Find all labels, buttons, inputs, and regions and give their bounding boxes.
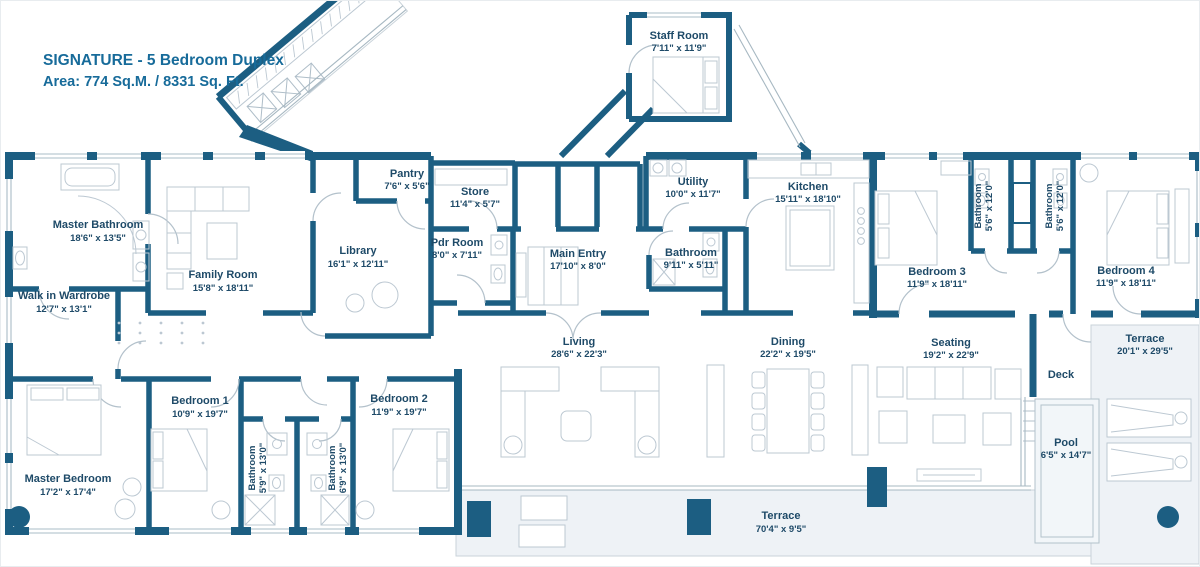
- room-label-pdr-room: Pdr Room 8'0" x 7'11": [431, 237, 484, 261]
- room-dims: 6'5" x 14'7": [1041, 450, 1092, 461]
- furniture-store: [435, 169, 507, 185]
- room-dims: 9'11" x 5'11": [664, 260, 719, 271]
- room-label-bedroom-2: Bedroom 2 11'9" x 19'7": [370, 393, 427, 418]
- furniture-bedroom-2: [356, 429, 449, 519]
- room-label-living: Living 28'6" x 22'3": [551, 336, 607, 360]
- room-dims: 19'2" x 22'9": [923, 350, 979, 361]
- room-dims: 5'6" x 12'0": [984, 181, 995, 232]
- pool-outline: [1035, 399, 1099, 543]
- room-label-bathroom-4: Bathroom 5'6" x 12'0": [1044, 181, 1066, 232]
- floor-plan: Master Bathroom 18'6" x 13'5" Family Roo…: [1, 1, 1200, 567]
- terrace-column: [687, 499, 711, 535]
- room-dims: 11'9" x 18'11": [1096, 278, 1156, 289]
- room-name: Staff Room: [650, 30, 709, 42]
- room-name: Bathroom: [665, 247, 717, 259]
- room-label-library: Library 16'1" x 12'11": [328, 245, 389, 270]
- room-name: Bedroom 1: [171, 395, 228, 407]
- terrace-column: [467, 501, 491, 537]
- room-label-staff-room: Staff Room 7'11" x 11'9": [650, 30, 709, 54]
- room-dims: 28'6" x 22'3": [551, 349, 607, 360]
- room-name: Terrace: [762, 510, 801, 522]
- room-name: Dining: [771, 336, 805, 348]
- room-dims: 70'4" x 9'5": [756, 524, 807, 535]
- room-name: Store: [461, 186, 489, 198]
- room-name: Pdr Room: [431, 237, 484, 249]
- room-dims: 11'9" x 19'7": [371, 407, 426, 418]
- floor-plan-page: Master Bathroom 18'6" x 13'5" Family Roo…: [0, 0, 1200, 567]
- room-dims: 17'10" x 8'0": [550, 261, 606, 272]
- furniture-bedroom-3: [875, 161, 971, 265]
- room-dims: 8'0" x 7'11": [432, 250, 482, 261]
- room-dims: 11'4" x 5'7": [450, 199, 500, 210]
- wall-stub: [867, 467, 887, 507]
- room-name: Bathroom: [327, 446, 338, 491]
- room-dims: 7'11" x 11'9": [652, 43, 707, 54]
- room-dims: 17'2" x 17'4": [40, 487, 96, 498]
- room-name: Bathroom: [247, 446, 258, 491]
- room-label-walk-in-wardrobe: Walk in Wardrobe 12'7" x 13'1": [18, 290, 110, 315]
- room-name: Pool: [1054, 437, 1078, 449]
- room-name: Master Bedroom: [25, 473, 112, 485]
- room-label-store: Store 11'4" x 5'7": [450, 186, 500, 210]
- room-label-bedroom-4: Bedroom 4 11'9" x 18'11": [1096, 265, 1156, 289]
- entrance-gallery: [218, 1, 407, 162]
- room-name: Bedroom 2: [370, 393, 427, 405]
- room-dims: 6'9" x 13'0": [338, 443, 349, 494]
- room-dims: 5'9" x 13'0": [258, 443, 269, 494]
- room-name: Utility: [678, 176, 709, 188]
- room-name: Pantry: [390, 168, 425, 180]
- room-label-master-bedroom: Master Bedroom 17'2" x 17'4": [25, 473, 112, 498]
- furniture-master-bedroom: [27, 385, 141, 519]
- room-name: Library: [339, 245, 377, 257]
- room-label-deck: Deck: [1048, 369, 1075, 381]
- furniture-entry-bathroom: [653, 233, 719, 285]
- room-label-pantry: Pantry 7'6" x 5'6": [384, 168, 429, 192]
- room-dims: 16'1" x 12'11": [328, 259, 389, 270]
- room-dims: 10'9" x 19'7": [172, 409, 228, 420]
- room-name: Living: [563, 336, 595, 348]
- room-name: Bathroom: [1044, 184, 1055, 229]
- room-name: Main Entry: [550, 248, 607, 260]
- room-dims: 22'2" x 19'5": [760, 349, 816, 360]
- room-name: Kitchen: [788, 181, 829, 193]
- room-label-kitchen: Kitchen 15'11" x 18'10": [775, 181, 841, 205]
- room-label-family-room: Family Room 15'8" x 18'11": [188, 269, 257, 294]
- round-column: [1157, 506, 1179, 528]
- furniture-dining: [752, 369, 824, 453]
- furniture-seating: [852, 365, 1021, 481]
- furniture-living: [501, 365, 724, 457]
- room-name: Walk in Wardrobe: [18, 290, 110, 302]
- room-name: Family Room: [188, 269, 257, 281]
- room-label-seating: Seating 19'2" x 22'9": [923, 337, 979, 361]
- room-dims: 10'0" x 11'7": [665, 189, 720, 200]
- plan-title-line1: SIGNATURE - 5 Bedroom Duplex: [43, 52, 284, 69]
- room-label-dining: Dining 22'2" x 19'5": [760, 336, 816, 360]
- room-dims: 15'11" x 18'10": [775, 194, 841, 205]
- staff-glass-rail: [734, 25, 805, 147]
- room-label-bathroom-2: Bathroom 6'9" x 13'0": [327, 443, 349, 494]
- round-column: [8, 506, 30, 528]
- room-name: Seating: [931, 337, 971, 349]
- furniture-wardrobe: [118, 322, 205, 345]
- plan-title-line2: Area: 774 Sq.M. / 8331 Sq. Ft.: [43, 74, 244, 90]
- furniture-bedroom-4: [1080, 164, 1189, 265]
- room-name: Bedroom 4: [1097, 265, 1155, 277]
- furniture-library: [346, 282, 398, 312]
- furniture-utility: [650, 160, 686, 176]
- room-dims: 5'6" x 12'0": [1055, 181, 1066, 232]
- room-dims: 18'6" x 13'5": [70, 233, 126, 244]
- room-label-bedroom-1: Bedroom 1 10'9" x 19'7": [171, 395, 228, 420]
- room-name: Bathroom: [973, 184, 984, 229]
- room-label-utility: Utility 10'0" x 11'7": [665, 176, 720, 200]
- room-name: Deck: [1048, 369, 1075, 381]
- room-name: Bedroom 3: [908, 266, 965, 278]
- room-label-bathroom-3: Bathroom 5'6" x 12'0": [973, 181, 995, 232]
- service-shaft: [1013, 183, 1031, 223]
- room-name: Terrace: [1126, 333, 1165, 345]
- room-label-bedroom-3: Bedroom 3 11'9" x 18'11": [907, 266, 967, 290]
- room-name: Master Bathroom: [53, 219, 144, 231]
- room-dims: 7'6" x 5'6": [384, 181, 429, 192]
- furniture: [13, 57, 1191, 547]
- room-label-bathroom-1: Bathroom 5'9" x 13'0": [247, 443, 269, 494]
- room-dims: 12'7" x 13'1": [36, 304, 92, 315]
- room-dims: 20'1" x 29'5": [1117, 346, 1173, 357]
- furniture-bedroom-1: [151, 429, 230, 519]
- room-dims: 11'9" x 18'11": [907, 279, 967, 290]
- furniture-staff-room: [653, 57, 719, 113]
- room-label-master-bathroom: Master Bathroom 18'6" x 13'5": [53, 219, 144, 244]
- room-dims: 15'8" x 18'11": [193, 283, 254, 294]
- furniture-pdr: [491, 235, 507, 283]
